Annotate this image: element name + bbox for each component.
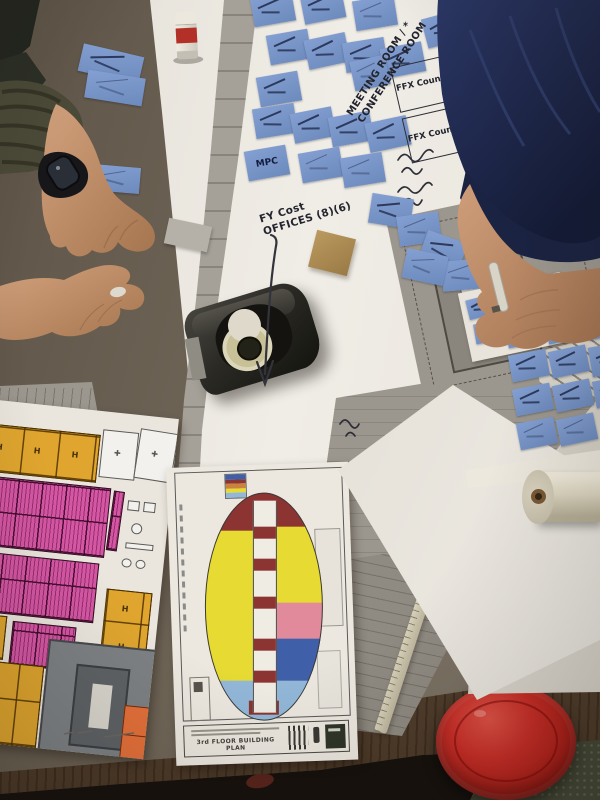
left-hand-lower <box>0 265 144 340</box>
scribble <box>346 433 355 437</box>
arrow-hook <box>271 235 276 246</box>
drawn-arrow <box>265 246 276 374</box>
left-person-arms <box>0 0 220 400</box>
watch-glint <box>56 166 60 170</box>
planning-charrette-photo: H H H ✚ ✚ H H H H H <box>0 0 600 800</box>
scribble <box>340 420 359 428</box>
right-person-arm <box>380 0 600 420</box>
tiny-marks <box>64 731 134 737</box>
